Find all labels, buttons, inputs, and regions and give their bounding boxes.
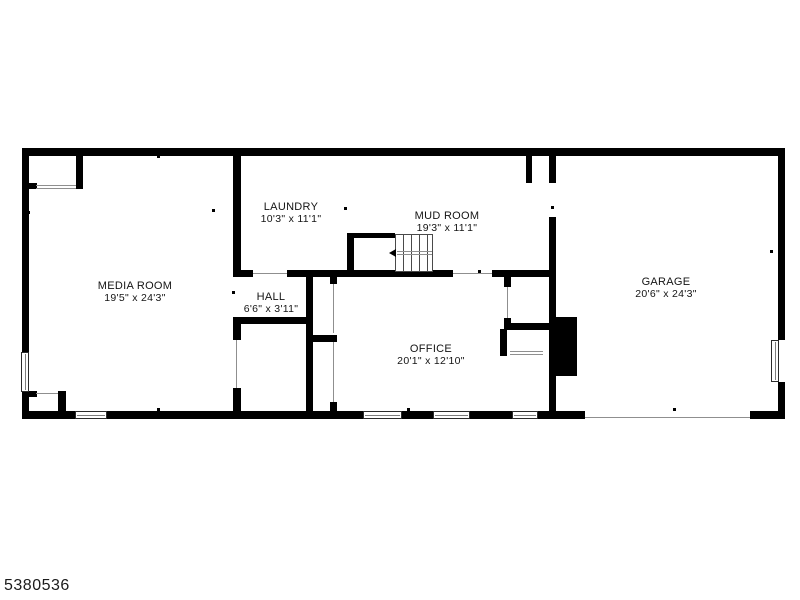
- wall-segment: [504, 323, 549, 330]
- wall-segment: [549, 217, 556, 318]
- stair-rail: [397, 254, 432, 255]
- doorway-line: [333, 342, 334, 402]
- room-name: MUD ROOM: [415, 210, 480, 222]
- wall-segment: [306, 272, 313, 412]
- doorway-line: [585, 417, 750, 418]
- chimney: [549, 317, 577, 376]
- doorway-line: [236, 340, 237, 388]
- wall-segment: [233, 156, 241, 272]
- room-dims: 19'5" x 24'3": [98, 292, 173, 304]
- wall-segment: [76, 156, 83, 189]
- door-tick: [344, 207, 347, 210]
- window: [771, 340, 779, 382]
- room-dims: 20'1" x 12'10": [397, 355, 465, 367]
- stairs-direction-arrow: [389, 249, 396, 257]
- room-dims: 19'3" x 11'1": [415, 222, 480, 234]
- floor-plan: MEDIA ROOM19'5" x 24'3"LAUNDRY10'3" x 11…: [0, 0, 800, 600]
- door-tick: [232, 291, 235, 294]
- wall-segment: [22, 411, 75, 419]
- room-dims: 6'6" x 3'11": [244, 303, 299, 315]
- wall-segment: [500, 329, 507, 356]
- door-tick: [482, 152, 485, 155]
- wall-segment: [233, 388, 241, 412]
- door-tick: [407, 408, 410, 411]
- door-tick: [157, 408, 160, 411]
- wall-segment: [58, 391, 66, 412]
- wall-segment: [22, 148, 785, 156]
- wall-segment: [347, 233, 354, 272]
- room-label: LAUNDRY10'3" x 11'1": [261, 201, 322, 225]
- wall-segment: [330, 402, 337, 412]
- stair-tread: [403, 235, 404, 271]
- wall-segment: [233, 270, 253, 277]
- wall-segment: [492, 270, 556, 277]
- doorway-line: [510, 351, 543, 352]
- wall-segment: [549, 156, 556, 183]
- stair-tread: [427, 235, 428, 271]
- doorway-line: [333, 284, 334, 333]
- staircase: [395, 234, 433, 272]
- wall-segment: [233, 318, 241, 340]
- room-label: OFFICE20'1" x 12'10": [397, 343, 465, 367]
- doorway-line: [507, 287, 508, 318]
- window: [75, 411, 107, 419]
- window: [363, 411, 402, 419]
- door-tick: [770, 250, 773, 253]
- door-tick: [673, 408, 676, 411]
- wall-segment: [306, 335, 337, 342]
- room-name: GARAGE: [635, 276, 697, 288]
- wall-segment: [347, 233, 395, 238]
- wall-segment: [549, 376, 556, 412]
- stair-tread: [419, 235, 420, 271]
- wall-segment: [22, 148, 29, 352]
- door-tick: [478, 270, 481, 273]
- room-name: MEDIA ROOM: [98, 280, 173, 292]
- room-dims: 20'6" x 24'3": [635, 288, 697, 300]
- stair-tread: [411, 235, 412, 271]
- room-name: LAUNDRY: [261, 201, 322, 213]
- window: [433, 411, 470, 419]
- window: [21, 352, 29, 392]
- wall-segment: [29, 391, 37, 397]
- wall-segment: [330, 277, 337, 284]
- wall-segment: [470, 411, 512, 419]
- room-label: HALL6'6" x 3'11": [244, 291, 299, 315]
- doorway-line: [36, 185, 76, 186]
- door-tick: [27, 211, 30, 214]
- room-label: GARAGE20'6" x 24'3": [635, 276, 697, 300]
- room-label: MEDIA ROOM19'5" x 24'3": [98, 280, 173, 304]
- door-tick: [673, 152, 676, 155]
- window: [512, 411, 538, 419]
- wall-segment: [233, 317, 313, 324]
- doorway-line: [510, 354, 543, 355]
- door-tick: [551, 206, 554, 209]
- wall-segment: [107, 411, 363, 419]
- door-tick: [212, 209, 215, 212]
- room-name: OFFICE: [397, 343, 465, 355]
- doorway-line: [253, 273, 287, 274]
- room-label: MUD ROOM19'3" x 11'1": [415, 210, 480, 234]
- listing-id: 5380536: [4, 577, 70, 595]
- wall-segment: [750, 411, 785, 419]
- doorway-line: [453, 273, 492, 274]
- room-name: HALL: [244, 291, 299, 303]
- wall-segment: [538, 411, 585, 419]
- door-tick: [157, 155, 160, 158]
- doorway-line: [36, 393, 58, 394]
- room-dims: 10'3" x 11'1": [261, 213, 322, 225]
- doorway-line: [36, 188, 76, 189]
- wall-segment: [504, 277, 511, 287]
- floor-plan-page: MEDIA ROOM19'5" x 24'3"LAUNDRY10'3" x 11…: [0, 0, 800, 600]
- wall-segment: [778, 148, 785, 340]
- wall-segment: [402, 411, 433, 419]
- stair-rail: [397, 251, 432, 252]
- wall-segment: [526, 156, 532, 183]
